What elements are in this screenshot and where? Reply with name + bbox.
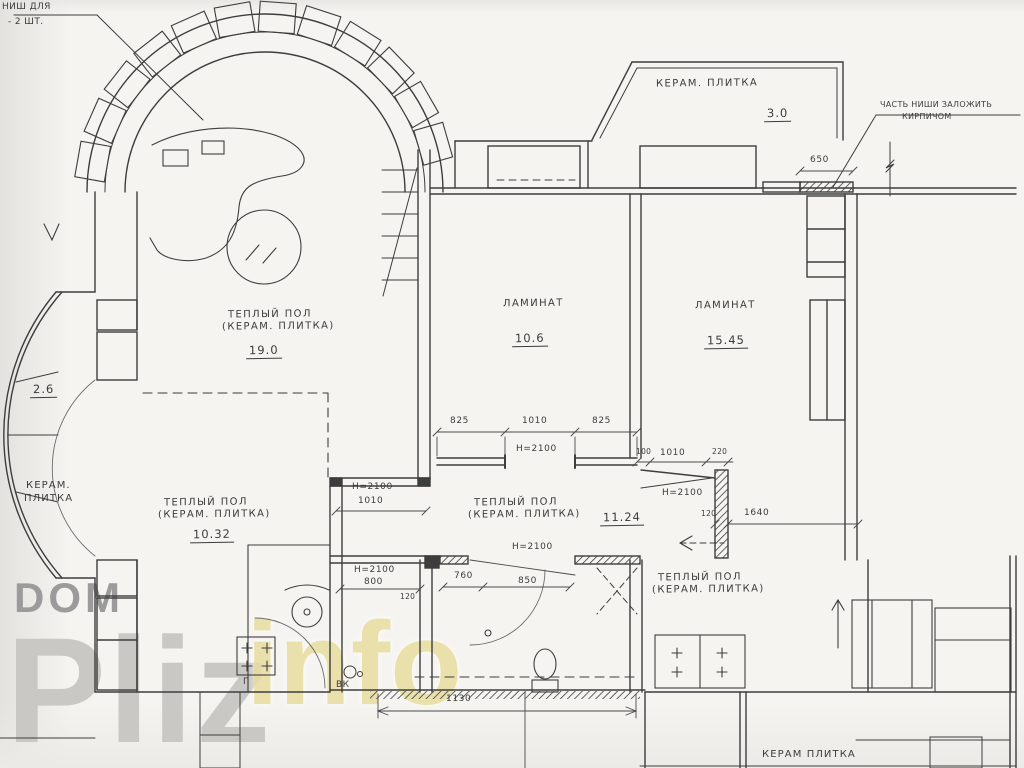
niche-note-line1: НИШ ДЛЯ bbox=[2, 2, 51, 13]
brick-note-line1: ЧАСТЬ НИШИ ЗАЛОЖИТЬ bbox=[880, 100, 992, 110]
dim-h2100-mid: Н=2100 bbox=[516, 444, 557, 455]
dim-1010c: 1010 bbox=[358, 496, 383, 507]
balcony-top-finish: КЕРАМ. ПЛИТКА bbox=[656, 77, 758, 91]
top-wall bbox=[430, 141, 1016, 194]
dashed-partition bbox=[143, 393, 328, 478]
dim-825a: 825 bbox=[450, 416, 469, 427]
balcony-bottom-finish: КЕРАМ ПЛИТКА bbox=[762, 749, 856, 762]
round-table-icon bbox=[227, 210, 301, 284]
mid-room-bottom-wall bbox=[437, 455, 637, 468]
niche-note-leader bbox=[14, 15, 203, 120]
niche-note-line2: - 2 ШТ. bbox=[8, 17, 43, 28]
dim-760: 760 bbox=[454, 571, 473, 582]
dimension-lines bbox=[332, 167, 862, 768]
bay-left-finish2: ПЛИТКА bbox=[24, 493, 73, 506]
g-mark: Г bbox=[243, 677, 249, 688]
bedroom-right-area: 15.45 bbox=[704, 333, 748, 350]
dim-h2100-left: Н=2100 bbox=[352, 482, 393, 493]
dim-120b: 120 bbox=[400, 592, 415, 601]
lower-left-area: 10.32 bbox=[190, 527, 234, 544]
floorplan-drawing bbox=[0, 0, 1024, 768]
dim-h2100-bath-door: Н=2100 bbox=[512, 542, 553, 553]
bedroom-mid-finish: ЛАМИНАТ bbox=[503, 298, 564, 311]
hall-area: 11.24 bbox=[600, 510, 644, 527]
stove-sink-icon bbox=[655, 635, 745, 688]
check-mark bbox=[44, 224, 59, 240]
bottom-walls bbox=[0, 556, 1016, 768]
dim-120a: 120 bbox=[701, 509, 716, 518]
dim-800: 800 bbox=[364, 577, 383, 588]
lower-left-finish2: (КЕРАМ. ПЛИТКА) bbox=[158, 508, 271, 522]
washbasin-icon bbox=[285, 585, 329, 627]
bedroom-right-finish: ЛАМИНАТ bbox=[695, 300, 756, 313]
toilet-icon bbox=[485, 630, 558, 692]
left-bay-wall bbox=[4, 292, 62, 578]
dim-825b: 825 bbox=[592, 416, 611, 427]
hall-finish2: (КЕРАМ. ПЛИТКА) bbox=[468, 508, 581, 522]
kitchen-finish2: (КЕРАМ. ПЛИТКА) bbox=[652, 583, 765, 597]
up-arrow bbox=[832, 600, 844, 648]
brick-note-leader bbox=[833, 115, 1020, 187]
living-area: 19.0 bbox=[246, 343, 282, 360]
dim-h2100-wc: Н=2100 bbox=[354, 565, 395, 576]
bay-left-area: 2.6 bbox=[30, 382, 58, 399]
laundry-unit-icon bbox=[237, 637, 275, 675]
bay-door-swing-arc bbox=[52, 380, 95, 556]
floor-plan-scan: DOM Pliz info bbox=[0, 0, 1024, 768]
kitchen-door-dashes bbox=[597, 568, 637, 614]
right-appliances bbox=[852, 600, 1011, 692]
balcony-top-area: 3.0 bbox=[764, 106, 792, 123]
arch-bay-wall bbox=[75, 1, 453, 192]
dim-220: 220 bbox=[712, 447, 727, 456]
top-balcony bbox=[592, 62, 843, 140]
bay-left-finish1: КЕРАМ. bbox=[26, 480, 71, 493]
wc-door-swing-arc bbox=[255, 618, 325, 688]
room1-right-wall bbox=[382, 150, 430, 480]
vk-label: ВК bbox=[336, 680, 349, 691]
dim-850: 850 bbox=[518, 576, 537, 587]
living-finish2: (КЕРАМ. ПЛИТКА) bbox=[222, 320, 335, 334]
dim-1640: 1640 bbox=[744, 508, 769, 519]
right-room-wall bbox=[807, 194, 857, 560]
dim-100: 100 bbox=[636, 447, 651, 456]
bedroom-mid-area: 10.6 bbox=[512, 331, 548, 348]
dim-1010b: 1010 bbox=[660, 448, 685, 459]
dim-1010a: 1010 bbox=[522, 416, 547, 427]
mid-room-wall bbox=[630, 194, 641, 458]
left-wall bbox=[56, 192, 137, 692]
dim-650: 650 bbox=[810, 155, 829, 166]
dim-h2100-right: Н=2100 bbox=[662, 488, 703, 499]
dim-1130: 1130 bbox=[446, 694, 471, 705]
brick-note-line2: КИРПИЧОМ bbox=[902, 112, 952, 122]
